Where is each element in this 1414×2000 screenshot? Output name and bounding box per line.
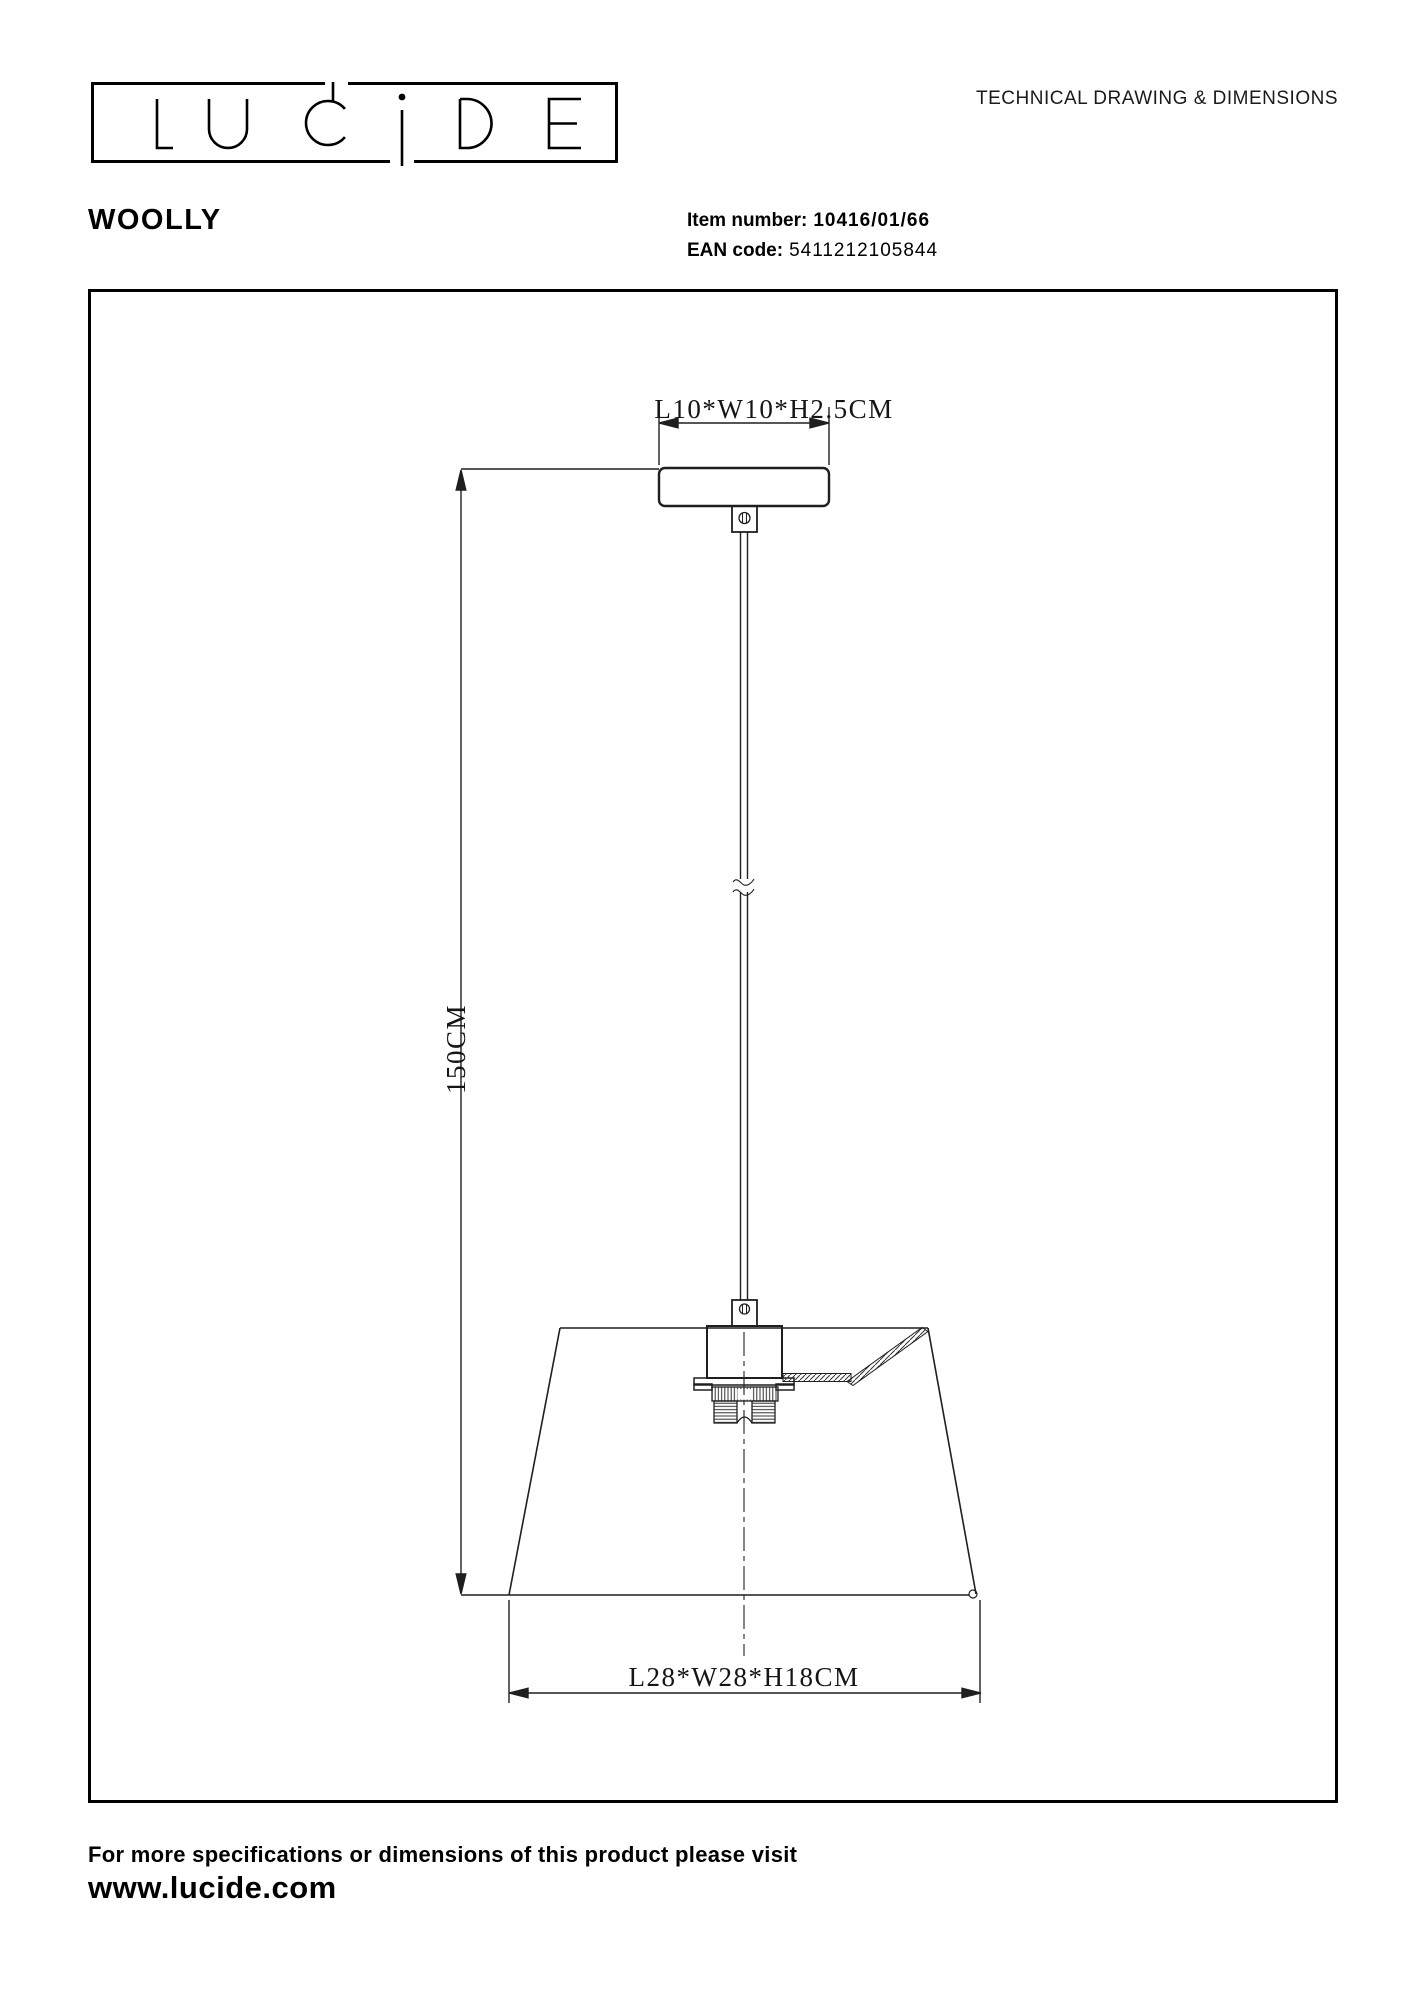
canopy-dimension-label: L10*W10*H2.5CM [642,394,906,425]
rod-break-symbol [733,879,754,895]
suspension-rod [733,532,754,1300]
canopy-connector [732,506,757,532]
lamp-shade-outline [461,1328,977,1598]
footer-note: For more specifications or dimensions of… [88,1842,797,1868]
technical-drawing [0,0,1414,2000]
shade-carrier-arm [783,1328,928,1386]
ceiling-canopy [659,468,829,506]
threaded-socket [712,1387,778,1423]
height-dimension-label: 150CM [441,969,469,1129]
shade-dimension-label: L28*W28*H18CM [614,1662,874,1693]
height-dimension [456,469,659,1594]
footer-website: www.lucide.com [88,1870,337,1906]
shade-connector [732,1300,757,1326]
page: { "header": { "brand": "LUCIDE", "doc_ti… [0,0,1414,2000]
